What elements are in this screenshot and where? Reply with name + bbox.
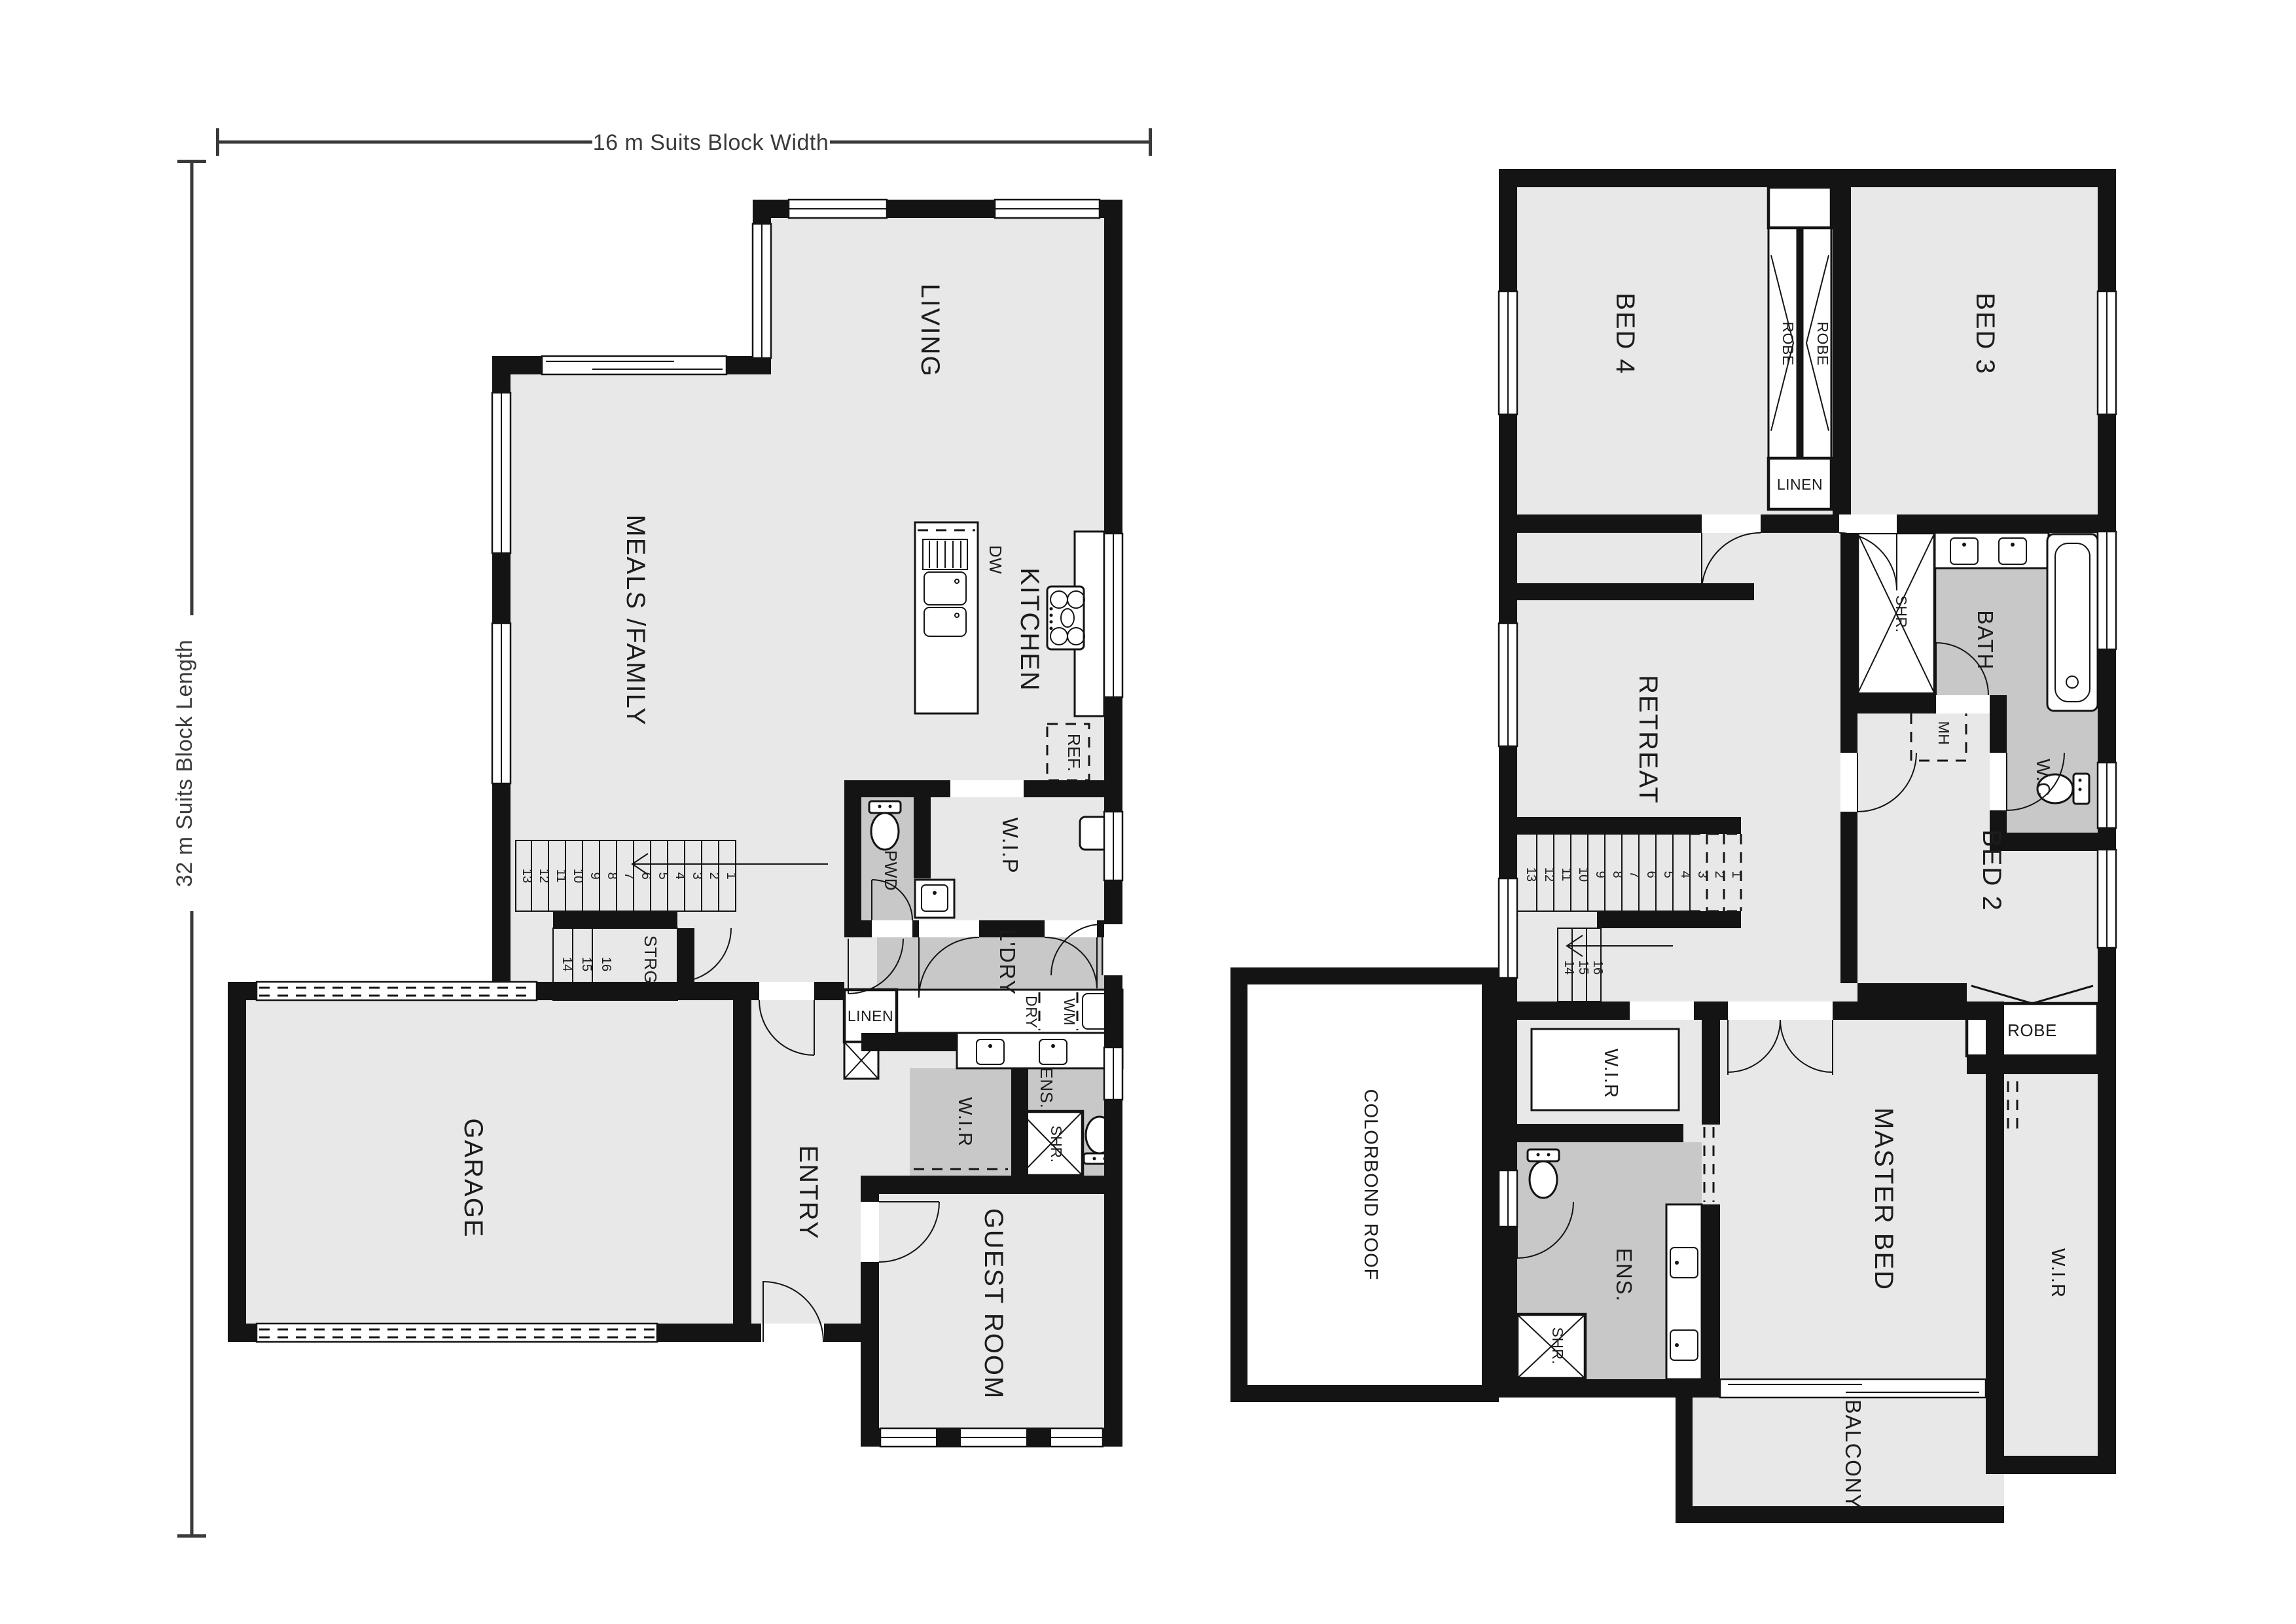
label-linen: LINEN (1777, 476, 1823, 493)
label-laundry: L'DRY (996, 929, 1020, 995)
master-ens-vanity (1666, 1204, 1702, 1379)
interior-wall (1517, 583, 1754, 600)
label-linen: LINEN (848, 1007, 893, 1024)
stair-number: 16 (1590, 960, 1605, 975)
label-garage: GARAGE (459, 1118, 488, 1238)
label-entry: ENTRY (794, 1146, 823, 1240)
stair-number: 14 (560, 957, 574, 971)
master-ens-toilet (1528, 1149, 1559, 1198)
stair-number: 13 (520, 869, 534, 883)
label-storage: STRG. (641, 935, 660, 989)
garage-entry-door-opening (759, 982, 814, 1000)
label-washing-machine: WM (1061, 998, 1078, 1026)
label-robe: ROBE (1780, 321, 1797, 365)
stair-number: 5 (656, 872, 670, 879)
pwd-door-opening (872, 920, 912, 937)
interior-wall (844, 780, 861, 937)
label-manhole: MH (1935, 721, 1952, 746)
stair-number: 8 (605, 872, 619, 879)
interior-wall (1702, 1020, 1720, 1125)
label-guest-wir: W.I.R (954, 1097, 975, 1147)
label-dishwasher: DW (986, 545, 1005, 574)
kitchen-island (915, 522, 978, 713)
dim-label-width: 16 m Suits Block Width (593, 130, 829, 155)
interior-wall (861, 1176, 1122, 1194)
interior-wall (861, 1033, 957, 1051)
garage-door-opening (257, 982, 537, 1000)
guest-door-opening (861, 1202, 879, 1262)
label-master-ens: ENS. (1612, 1248, 1636, 1302)
stair-number: 15 (1576, 960, 1590, 975)
front-door-opening (761, 1324, 824, 1342)
master-door-opening (1728, 1001, 1833, 1020)
label-refrigerator: REF. (1064, 734, 1084, 772)
label-bed3: BED 3 (1971, 293, 2000, 375)
wc-door-opening (1990, 753, 2007, 810)
bathtub (2047, 534, 2098, 711)
stair-number: 9 (1593, 871, 1607, 878)
sliding-stacker-door (542, 356, 726, 374)
interior-wall (1011, 1068, 1028, 1177)
label-bath-shower: SHR. (1893, 596, 1910, 633)
cooktop (1047, 586, 1085, 649)
stair-number: 1 (1729, 871, 1744, 878)
label-master-bed: MASTER BED (1869, 1108, 1898, 1291)
stair-wall (1517, 817, 1741, 834)
stair-number: 11 (554, 869, 568, 883)
pwd-toilet (869, 801, 901, 850)
label-living: LIVING (916, 283, 944, 377)
bed4-door-opening (1702, 514, 1761, 533)
interior-wall (1857, 983, 1967, 1001)
ground-floor-plan: 1 2 3 4 5 6 7 8 9 10 11 12 13 14 15 16 (228, 200, 1122, 1447)
interior-wall (1840, 533, 1857, 713)
stair-number: 16 (599, 957, 613, 971)
pantry-opening (950, 780, 1024, 797)
label-meals-family: MEALS /FAMILY (621, 514, 650, 726)
stair-number: 3 (1695, 871, 1710, 878)
label-master-wir-right: W.I.R (2047, 1248, 2068, 1298)
stair-number: 10 (571, 869, 585, 883)
label-dryer: DRY (1023, 996, 1040, 1028)
balcony-wall (1676, 1506, 2004, 1523)
balcony-wall (1676, 1398, 1693, 1523)
stair-wall (553, 911, 677, 928)
label-guest-room: GUEST ROOM (979, 1208, 1008, 1400)
bath-door-opening (1936, 695, 1990, 713)
stair-number: 9 (588, 872, 602, 879)
stair-number: 15 (579, 957, 594, 971)
label-robe: ROBE (1814, 321, 1831, 365)
interior-wall (1517, 1124, 1683, 1142)
stair-number: 4 (673, 872, 687, 879)
stair-number: 6 (639, 872, 653, 879)
label-guest-ens: ENS. (1037, 1068, 1056, 1109)
stair-number: 1 (724, 872, 738, 879)
laundry-bench (897, 990, 1122, 1033)
pwd-basin (915, 880, 954, 918)
label-master-shower: SHR. (1549, 1327, 1566, 1365)
stair-number: 14 (1562, 960, 1576, 975)
stair-number: 7 (1627, 871, 1641, 878)
exterior-wall (1499, 169, 2116, 187)
wir-opening (1630, 1001, 1694, 1020)
label-bed2: BED 2 (1977, 829, 2006, 912)
label-bed4: BED 4 (1611, 293, 1640, 375)
label-master-wir-left: W.I.R (1600, 1049, 1621, 1098)
dim-label-length: 32 m Suits Block Length (172, 640, 197, 887)
stair-number: 3 (690, 872, 704, 879)
upper-floor-plan: COLORBOND ROOF (1239, 169, 2116, 1523)
label-wip: W.I.P (998, 818, 1022, 874)
interior-wall (914, 797, 931, 878)
laundry-door-opening (919, 920, 979, 937)
stair-number: 12 (537, 869, 551, 883)
stair-wall (677, 928, 694, 1000)
label-balcony: BALCONY (1841, 1399, 1865, 1509)
stair-number: 8 (1610, 871, 1624, 878)
bed3-door-opening (1839, 514, 1897, 533)
laundry-external-door (1104, 924, 1122, 975)
balcony-sliding-door (1720, 1379, 1986, 1398)
interior-wall (1833, 187, 1851, 514)
stair-number: 4 (1678, 871, 1693, 878)
exterior-wall (228, 982, 246, 1342)
stair-number: 2 (1712, 871, 1727, 878)
stair-number: 7 (622, 872, 636, 879)
exterior-wall (1499, 1379, 1720, 1398)
stair-wall (1597, 911, 1741, 928)
label-kitchen: KITCHEN (1015, 568, 1044, 692)
label-pwd: PWD (881, 850, 901, 891)
label-bed2-robe: ROBE (2007, 1020, 2057, 1040)
stair-number: 13 (1524, 867, 1538, 882)
stair-number: 11 (1559, 868, 1573, 882)
guest-ens-vanity (957, 1033, 1122, 1068)
label-wc: W.C (2032, 759, 2053, 797)
garage-door-opening (257, 1324, 657, 1342)
label-guest-shower: SHR. (1048, 1126, 1065, 1163)
room-laundry (877, 937, 1104, 990)
interior-wall (1967, 1056, 2116, 1074)
stair-number: 5 (1661, 871, 1676, 878)
stair-number: 12 (1542, 867, 1556, 882)
stair-number: 10 (1576, 867, 1590, 882)
label-bath: BATH (1973, 610, 1998, 670)
interior-wall (1857, 695, 1936, 713)
robe-nook (1768, 187, 1831, 228)
stair-number: 6 (1644, 871, 1659, 878)
label-colorbond-roof: COLORBOND ROOF (1360, 1089, 1381, 1281)
bed2-door-opening (1840, 753, 1857, 812)
garage-wall (733, 1000, 751, 1324)
bath-vanity (1935, 533, 2049, 568)
exterior-wall (1986, 1456, 2116, 1474)
interior-wall (1702, 1204, 1720, 1379)
exterior-wall (861, 1342, 879, 1428)
stair-number: 2 (707, 872, 721, 879)
interior-wall (1517, 514, 2098, 533)
label-retreat: RETREAT (1634, 675, 1662, 804)
